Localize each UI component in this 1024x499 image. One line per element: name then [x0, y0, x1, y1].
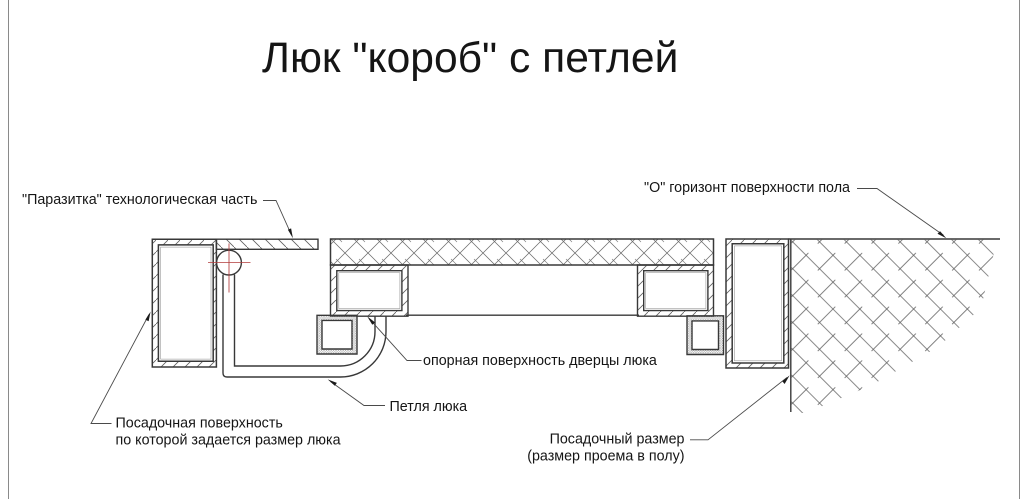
svg-text:(размер проема в полу): (размер проема в полу): [527, 449, 684, 465]
svg-text:опорная поверхность дверцы люк: опорная поверхность дверцы люка: [423, 353, 657, 369]
svg-text:по которой задается размер люк: по которой задается размер люка: [116, 433, 341, 449]
svg-text:"О" горизонт поверхности пола: "О" горизонт поверхности пола: [644, 180, 850, 196]
svg-text:Петля люка: Петля люка: [390, 399, 468, 415]
svg-text:Посадочный размер: Посадочный размер: [550, 432, 685, 448]
svg-text:"Паразитка" технологическая ча: "Паразитка" технологическая часть: [22, 192, 257, 208]
svg-text:Люк "короб" с петлей: Люк "короб" с петлей: [262, 34, 678, 82]
svg-text:Посадочная поверхность: Посадочная поверхность: [116, 416, 283, 432]
